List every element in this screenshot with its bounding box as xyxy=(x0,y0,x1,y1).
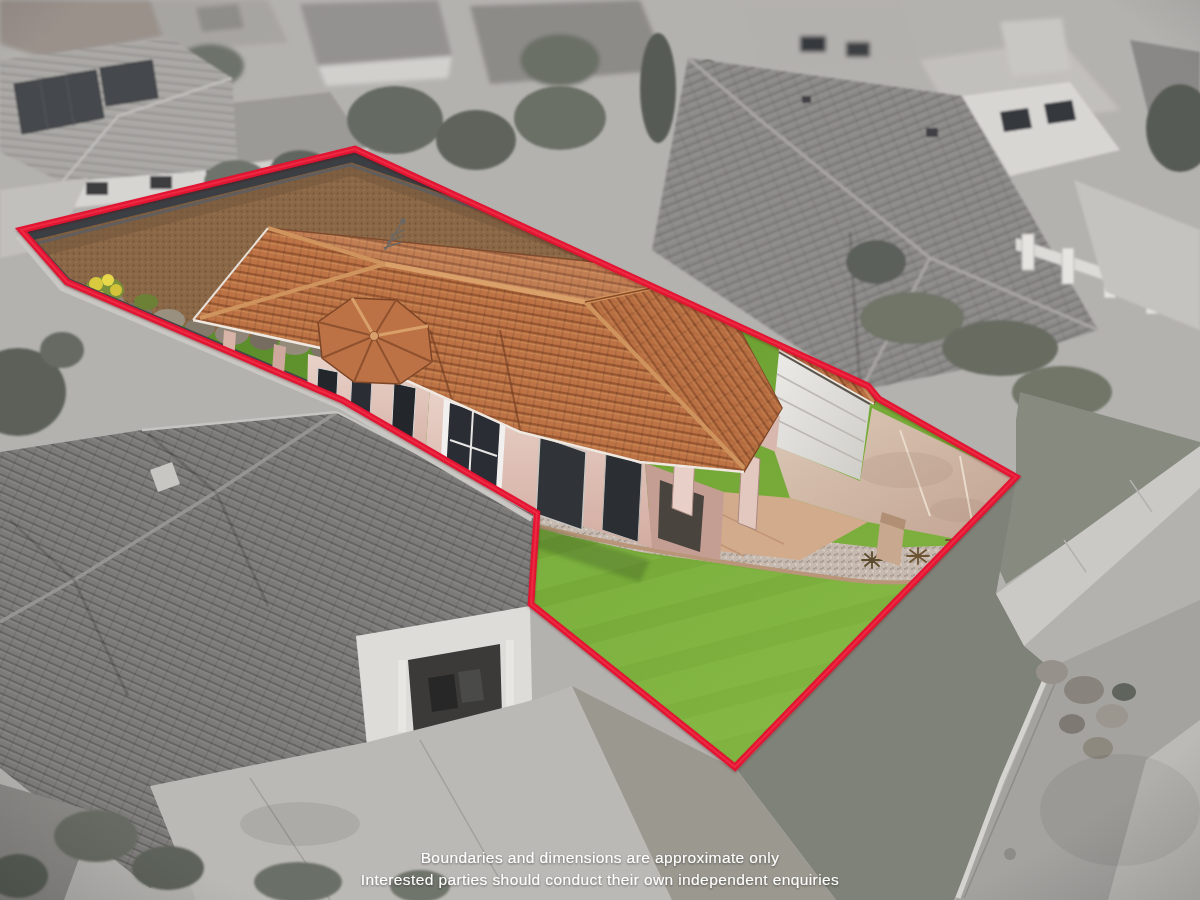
aerial-photo: Boundaries and dimensions are approximat… xyxy=(0,0,1200,900)
aerial-photo-stage: Boundaries and dimensions are approximat… xyxy=(0,0,1200,900)
disclaimer-line-1: Boundaries and dimensions are approximat… xyxy=(421,849,780,866)
disclaimer-line-2: Interested parties should conduct their … xyxy=(361,871,839,888)
vignette xyxy=(0,0,1200,900)
